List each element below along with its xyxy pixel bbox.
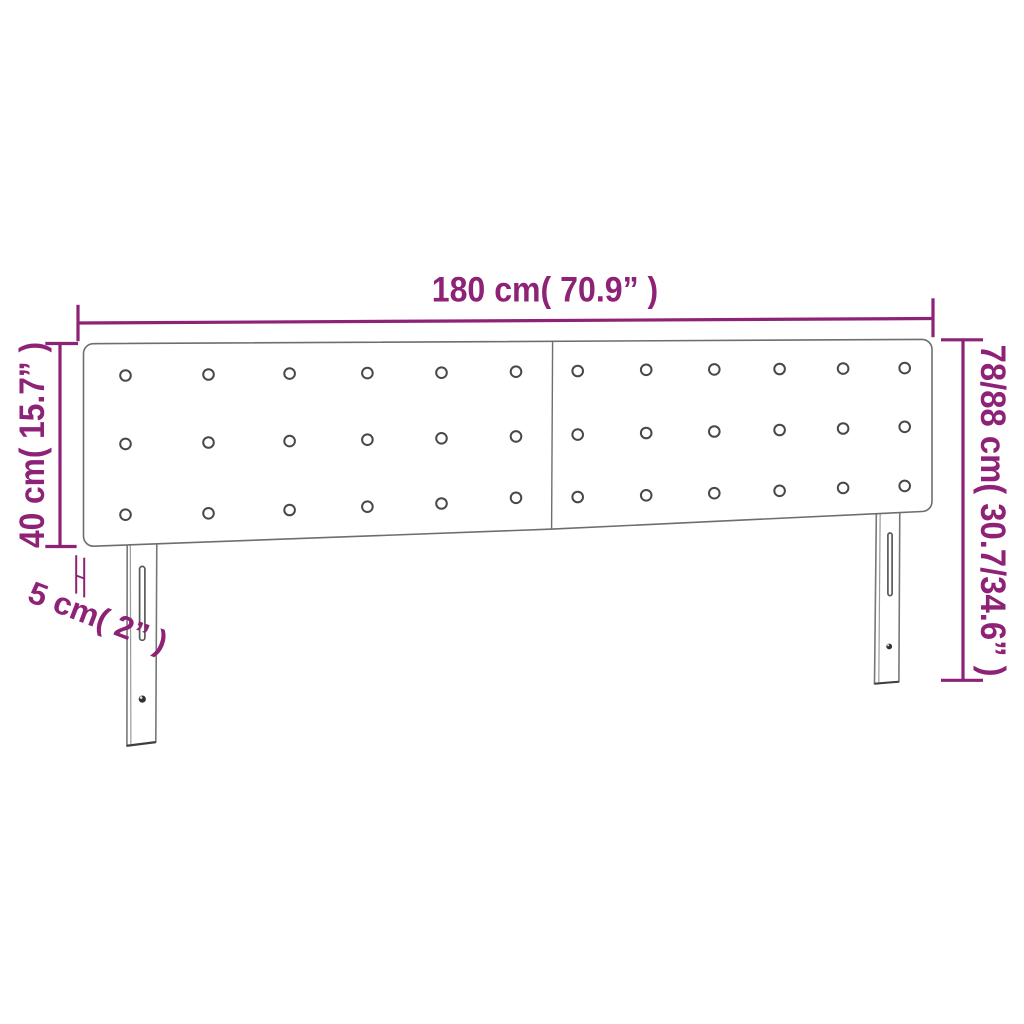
svg-text:40 cm( 15.7” ): 40 cm( 15.7” )	[13, 342, 52, 548]
svg-text:78/88 cm( 30.7/34.6” ): 78/88 cm( 30.7/34.6” )	[973, 345, 1012, 677]
svg-text:180 cm( 70.9” ): 180 cm( 70.9” )	[432, 271, 659, 310]
